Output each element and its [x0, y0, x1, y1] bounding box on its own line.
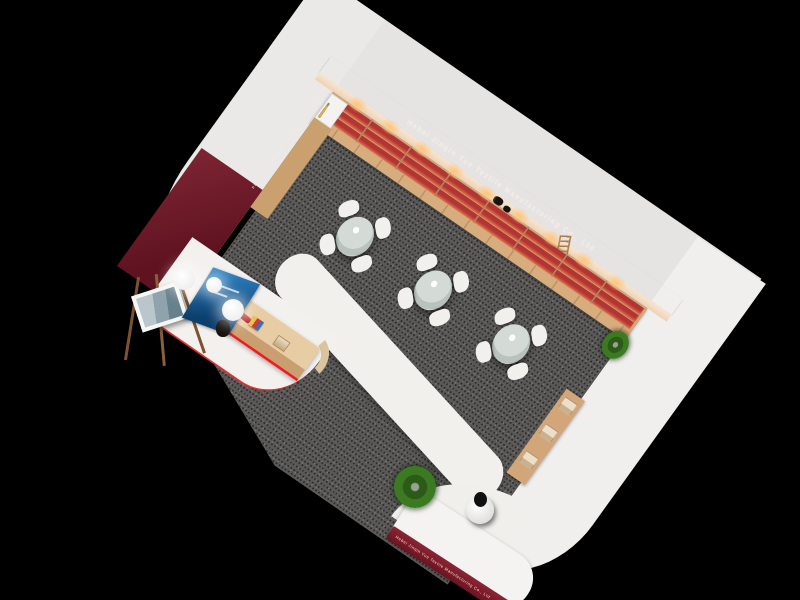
bench-box: [557, 396, 577, 416]
bench-box: [538, 423, 558, 443]
showroom-render: Hebei Jinqin Yue Textile Manufacturing C…: [0, 0, 800, 600]
pendant-lamp: [222, 299, 244, 321]
pendant-lamp: [206, 277, 222, 293]
pendant-lamp: [173, 268, 195, 290]
desk-kraft-box: [272, 335, 290, 352]
bench-box: [519, 450, 539, 470]
black-vase: [216, 320, 230, 337]
visitor-head: [474, 492, 487, 507]
visitor-figure: [466, 492, 494, 524]
framed-artwork: [136, 287, 183, 328]
entrance-plant: [394, 466, 436, 508]
